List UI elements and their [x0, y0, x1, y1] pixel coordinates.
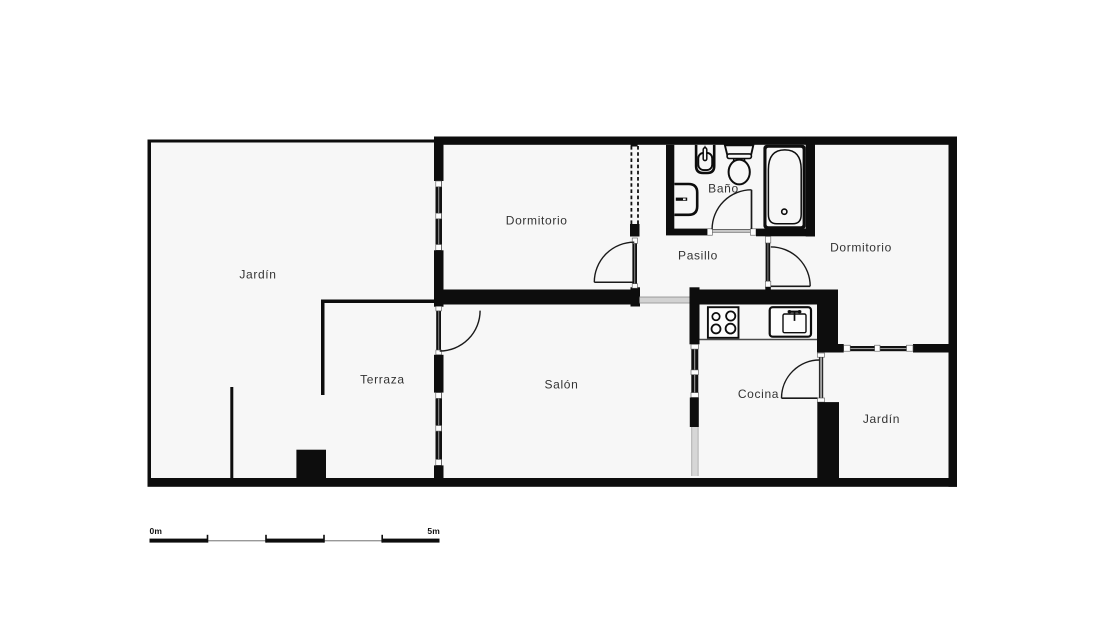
svg-text:Pasillo: Pasillo [678, 249, 718, 263]
svg-text:5m: 5m [427, 526, 440, 536]
svg-text:0m: 0m [150, 526, 163, 536]
svg-text:Terraza: Terraza [360, 372, 405, 386]
svg-text:Baño: Baño [708, 181, 739, 195]
svg-text:Jardín: Jardín [863, 412, 900, 426]
svg-text:Dormitorio: Dormitorio [506, 214, 568, 228]
svg-text:Dormitorio: Dormitorio [830, 241, 892, 255]
svg-text:Salón: Salón [545, 378, 579, 392]
svg-text:Jardín: Jardín [239, 268, 276, 282]
svg-text:Cocina: Cocina [738, 387, 779, 401]
